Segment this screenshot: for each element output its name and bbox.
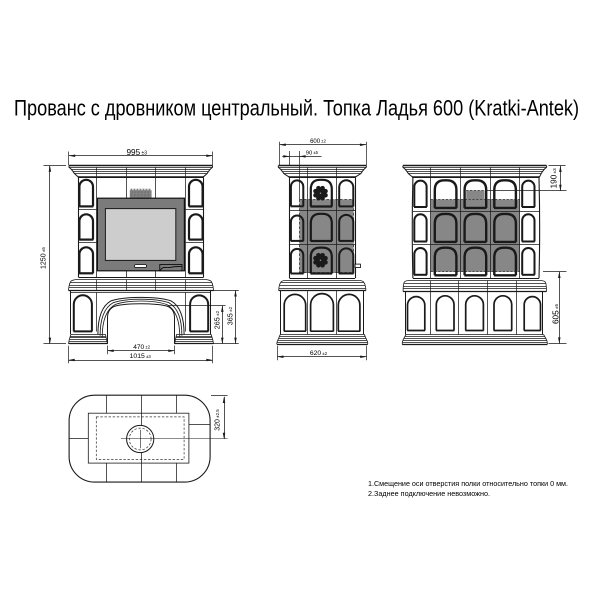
svg-text:1.Смещение оси отверстия полки: 1.Смещение оси отверстия полки относител…: [368, 479, 568, 488]
svg-text:2.Заднее подключение невозможн: 2.Заднее подключение невозможно.: [368, 489, 490, 498]
svg-text:Прованс с дровником центральны: Прованс с дровником центральный. Топка Л…: [14, 96, 579, 121]
